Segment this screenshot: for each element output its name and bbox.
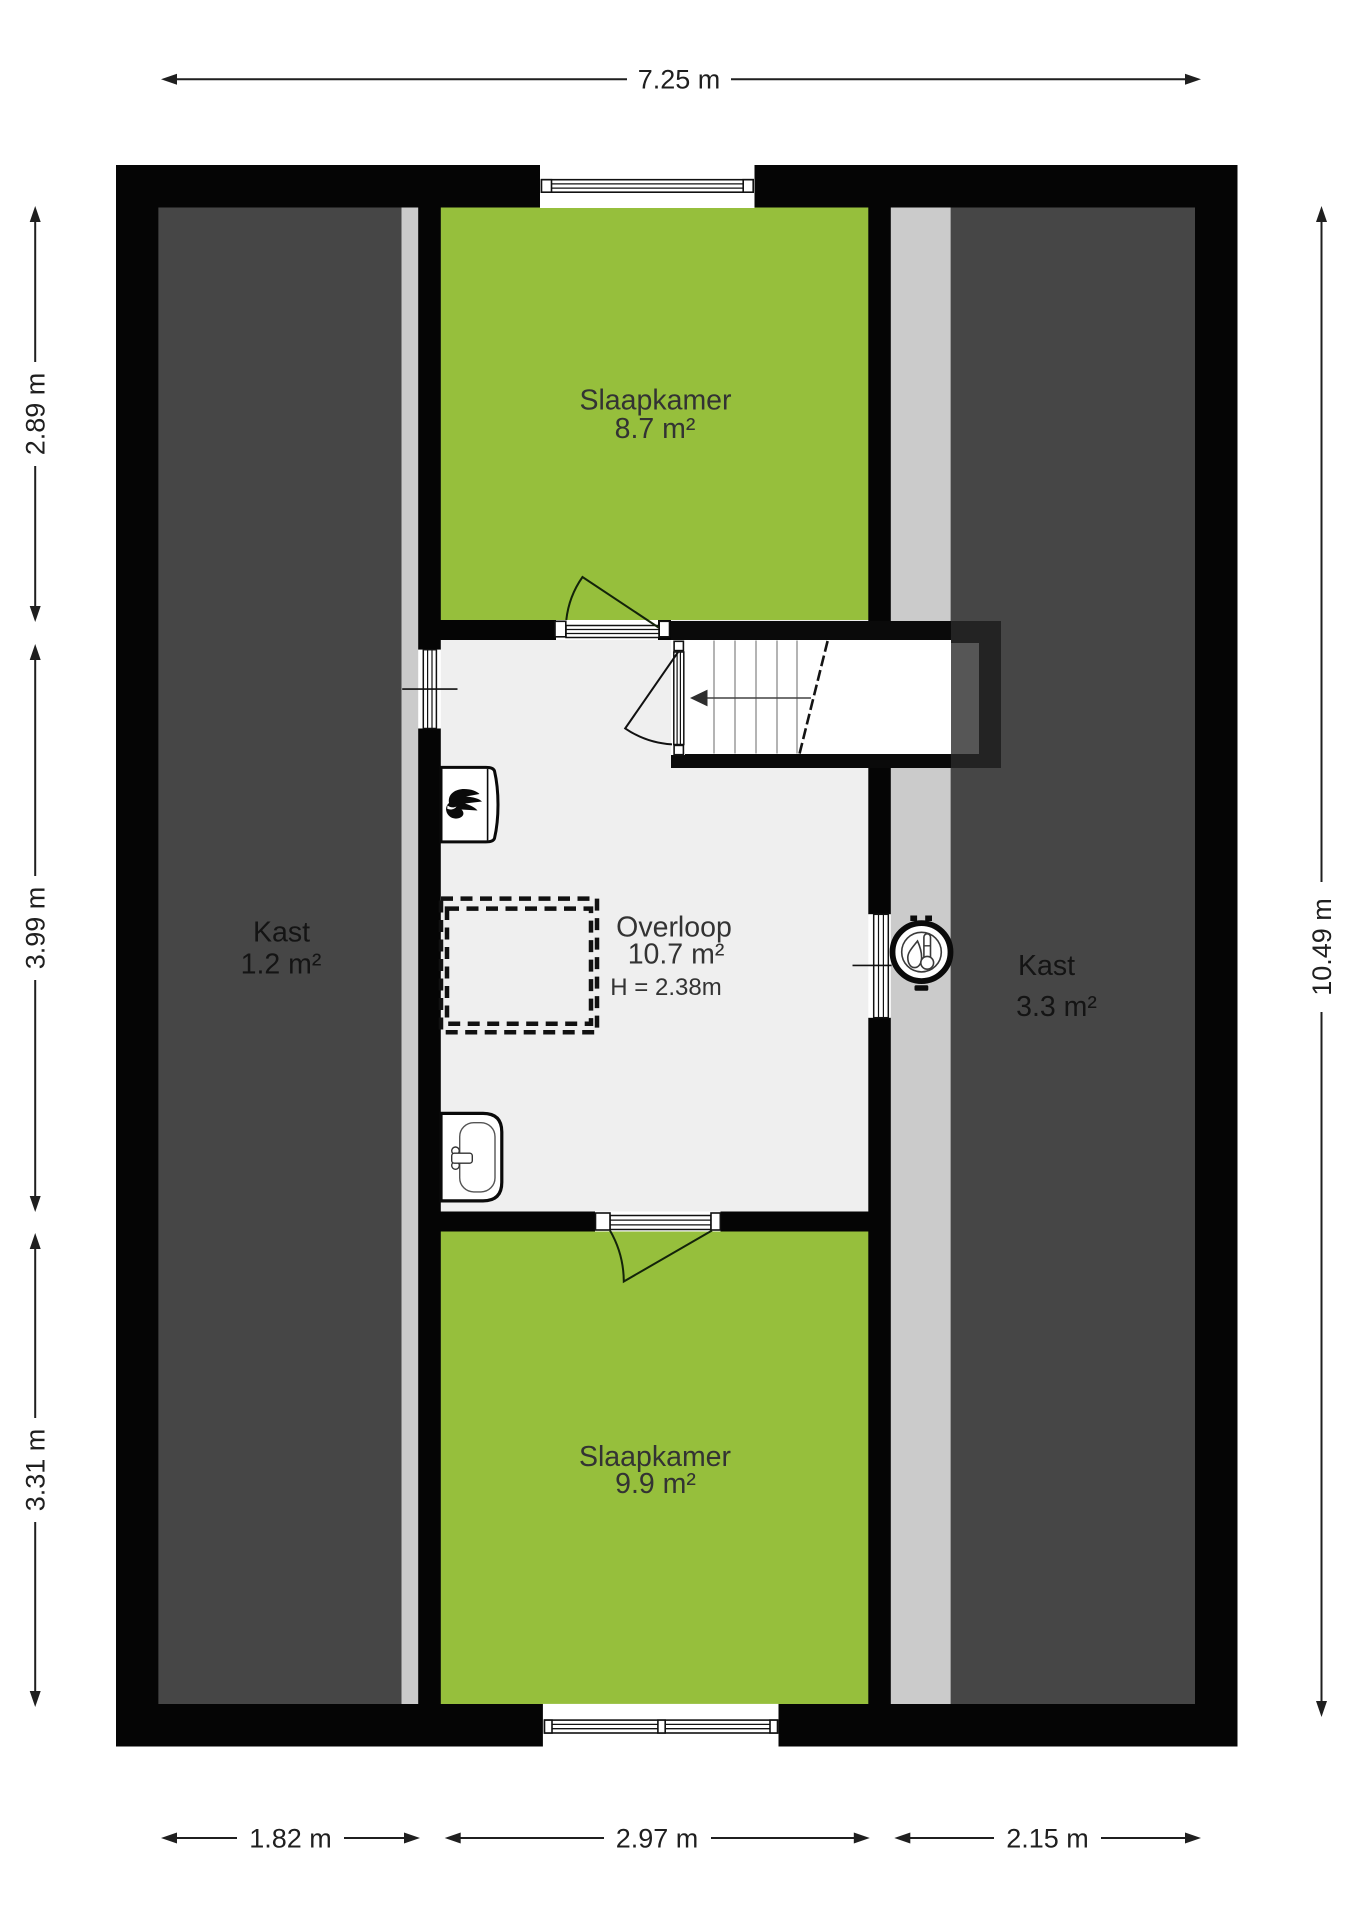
svg-text:Kast: Kast: [253, 917, 310, 949]
svg-text:H = 2.38m: H = 2.38m: [610, 974, 721, 1001]
svg-text:Kast: Kast: [1018, 950, 1075, 982]
svg-text:2.97 m: 2.97 m: [616, 1824, 699, 1854]
svg-text:3.3 m²: 3.3 m²: [1016, 991, 1097, 1023]
svg-text:2.15 m: 2.15 m: [1006, 1824, 1089, 1854]
svg-text:1.82 m: 1.82 m: [249, 1824, 332, 1854]
svg-text:7.25 m: 7.25 m: [638, 65, 721, 95]
svg-text:8.7 m²: 8.7 m²: [615, 413, 696, 445]
svg-text:9.9 m²: 9.9 m²: [615, 1468, 696, 1500]
svg-text:2.89 m: 2.89 m: [21, 373, 51, 456]
svg-text:10.7 m²: 10.7 m²: [628, 939, 725, 971]
svg-text:10.49 m: 10.49 m: [1307, 898, 1337, 996]
svg-text:3.99 m: 3.99 m: [21, 887, 51, 970]
svg-text:3.31 m: 3.31 m: [21, 1429, 51, 1512]
svg-text:Slaapkamer: Slaapkamer: [579, 385, 732, 417]
svg-text:1.2 m²: 1.2 m²: [241, 949, 322, 981]
